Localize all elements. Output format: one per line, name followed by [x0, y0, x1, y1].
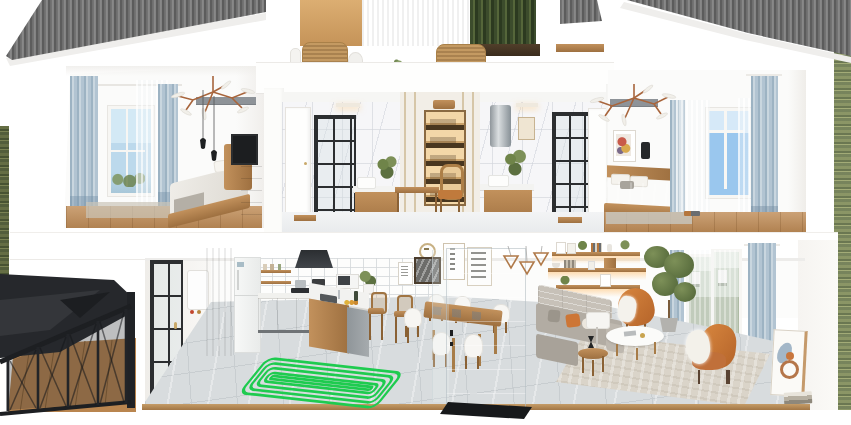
wall-shelf-3 — [556, 285, 640, 289]
dining-chair-3 — [404, 308, 422, 328]
bedroom-right-art-print — [616, 134, 631, 156]
floor-books — [684, 211, 700, 216]
coffee-table-bowl — [640, 333, 645, 338]
terrace-floor-slab — [256, 62, 614, 94]
dresser-left-bedroom — [241, 166, 262, 222]
poster-small-print — [401, 266, 408, 278]
ficus-trunk — [668, 300, 670, 320]
dining-chair-3-legs — [405, 326, 419, 337]
wall-thermostat — [641, 142, 650, 159]
exterior-staircase — [0, 274, 136, 414]
ficus-pot — [660, 318, 678, 332]
bedroom-right-rug — [606, 212, 692, 224]
vanity-left-basin — [357, 177, 376, 189]
bedroom-right-wall-shade — [788, 70, 806, 230]
vanity-right-plant — [504, 148, 526, 176]
trees-left-edge — [0, 126, 9, 276]
shelf-books-1 — [591, 243, 602, 252]
ceiling-beam-right — [610, 99, 658, 107]
nook-chair-seat — [438, 190, 462, 199]
wall-shelf-2 — [548, 268, 646, 272]
roof-right-fascia — [620, 2, 851, 63]
terrace-wood-edge — [556, 44, 604, 52]
fridge-display — [237, 262, 244, 267]
terrace-grey-wall — [362, 0, 470, 46]
glass-partition-hinge — [450, 342, 453, 346]
threshold-left — [294, 215, 316, 221]
shelf-vase — [607, 244, 612, 252]
coffee-table-leg-2 — [636, 348, 638, 360]
kitchen-shelf-1 — [261, 270, 291, 273]
house-cutaway-render — [0, 0, 851, 425]
shelf-frame-3 — [600, 274, 611, 287]
drape-right-bedroom-right — [751, 76, 778, 224]
window-right-mullion-v — [724, 111, 727, 189]
bathroom-floor — [282, 212, 608, 234]
nook-trim-4 — [472, 92, 474, 232]
glass-partition — [446, 248, 526, 410]
vanity-left-plant — [377, 154, 397, 180]
shelf-frame-2 — [567, 243, 576, 254]
kitchen-tall-cabinet — [206, 248, 236, 356]
bathroom-left-door — [285, 107, 311, 219]
coffee-table-leg-1 — [616, 344, 618, 356]
towel-warmer — [490, 105, 511, 147]
sofa-pillow-orange — [565, 313, 581, 328]
roof-back-wedge — [560, 0, 602, 24]
ceiling-beam-left — [196, 97, 256, 105]
ficus-foliage-5 — [674, 282, 696, 302]
island-side — [347, 307, 369, 357]
entry-door-handle — [174, 322, 177, 329]
shelf-plant-3 — [560, 276, 570, 285]
vanity-right-basin — [488, 175, 509, 187]
roof-right — [627, 0, 851, 56]
shelf-jar — [588, 261, 595, 270]
island-front — [309, 298, 349, 353]
range-hood — [295, 250, 333, 268]
boiler-valve-red — [190, 310, 194, 314]
pot-steel — [295, 280, 306, 288]
floor-lamp-shade — [586, 312, 610, 329]
leaning-artwork-ring — [780, 360, 799, 379]
wall-clock-hand — [424, 248, 429, 250]
island-faucet — [338, 290, 340, 299]
leaning-artwork-dot — [786, 352, 794, 360]
fridge-handle — [237, 270, 239, 290]
nook-trim-2 — [414, 92, 416, 232]
bottom-slab — [0, 410, 851, 425]
nook-desk — [395, 187, 439, 193]
bar-stool-1-legs — [369, 314, 383, 340]
bedroom-left-ceiling-shade — [66, 66, 262, 76]
nook-lamp — [433, 100, 455, 109]
terrace-wood-wall — [300, 0, 362, 46]
side-table-leg-3 — [602, 356, 604, 372]
side-table-leg-1 — [582, 357, 584, 373]
shelf-books-2 — [564, 260, 576, 268]
terrace-hedge — [470, 0, 536, 48]
sofa-pillow-grey — [547, 309, 560, 322]
threshold-right — [558, 217, 582, 223]
shelf-frame-1 — [556, 242, 566, 254]
nook-trim-1 — [404, 92, 406, 232]
side-table-leg-2 — [592, 360, 594, 376]
ceiling-light-left — [336, 103, 360, 107]
bathroom-right-art — [518, 117, 535, 140]
shelf-plant-2 — [620, 240, 630, 252]
shelf-wood-box — [604, 258, 616, 268]
boiler-valve-brass — [197, 310, 201, 314]
bathroom-left-door-handle — [304, 162, 307, 165]
ceiling-light-right — [516, 103, 538, 107]
roof-left — [6, 0, 266, 60]
sheer-right-bedroom-left — [676, 100, 710, 214]
tv-left-bedroom — [231, 134, 258, 165]
divider-wall-left — [264, 88, 284, 238]
kitchen-jars — [263, 264, 287, 270]
microwave-window — [338, 276, 350, 285]
fridge-divider — [234, 295, 259, 296]
glass-partition-handle — [450, 330, 453, 336]
shelf-plant-1 — [578, 241, 587, 252]
coffee-table-leg-3 — [654, 342, 656, 354]
kitchen-shelf-2 — [261, 281, 291, 284]
island-bottle — [354, 291, 358, 301]
book-stack — [784, 391, 813, 404]
armchair-right-legs — [698, 370, 730, 384]
